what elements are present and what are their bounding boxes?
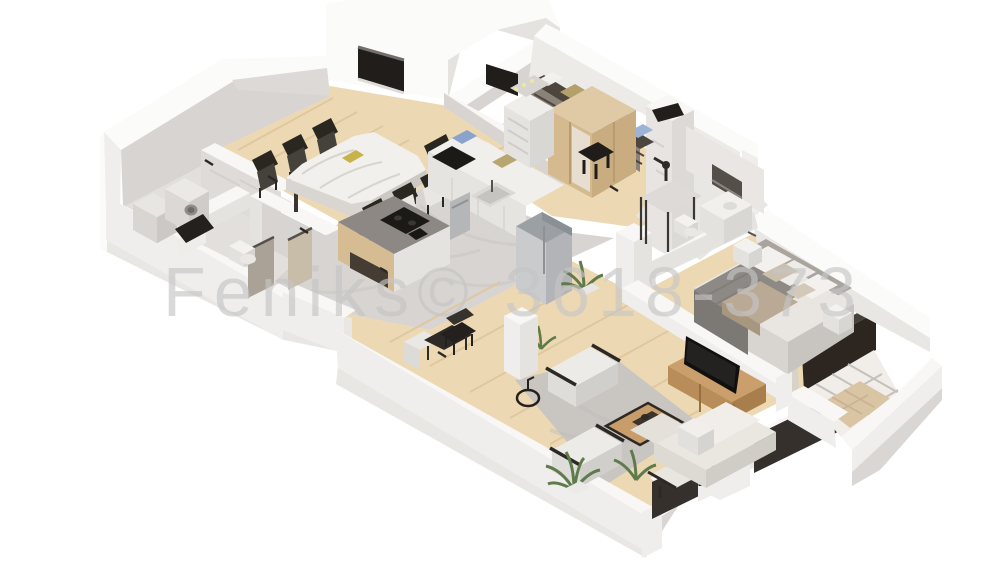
svg-text:Feniks© 3618-373: Feniks© 3618-373: [163, 253, 864, 331]
